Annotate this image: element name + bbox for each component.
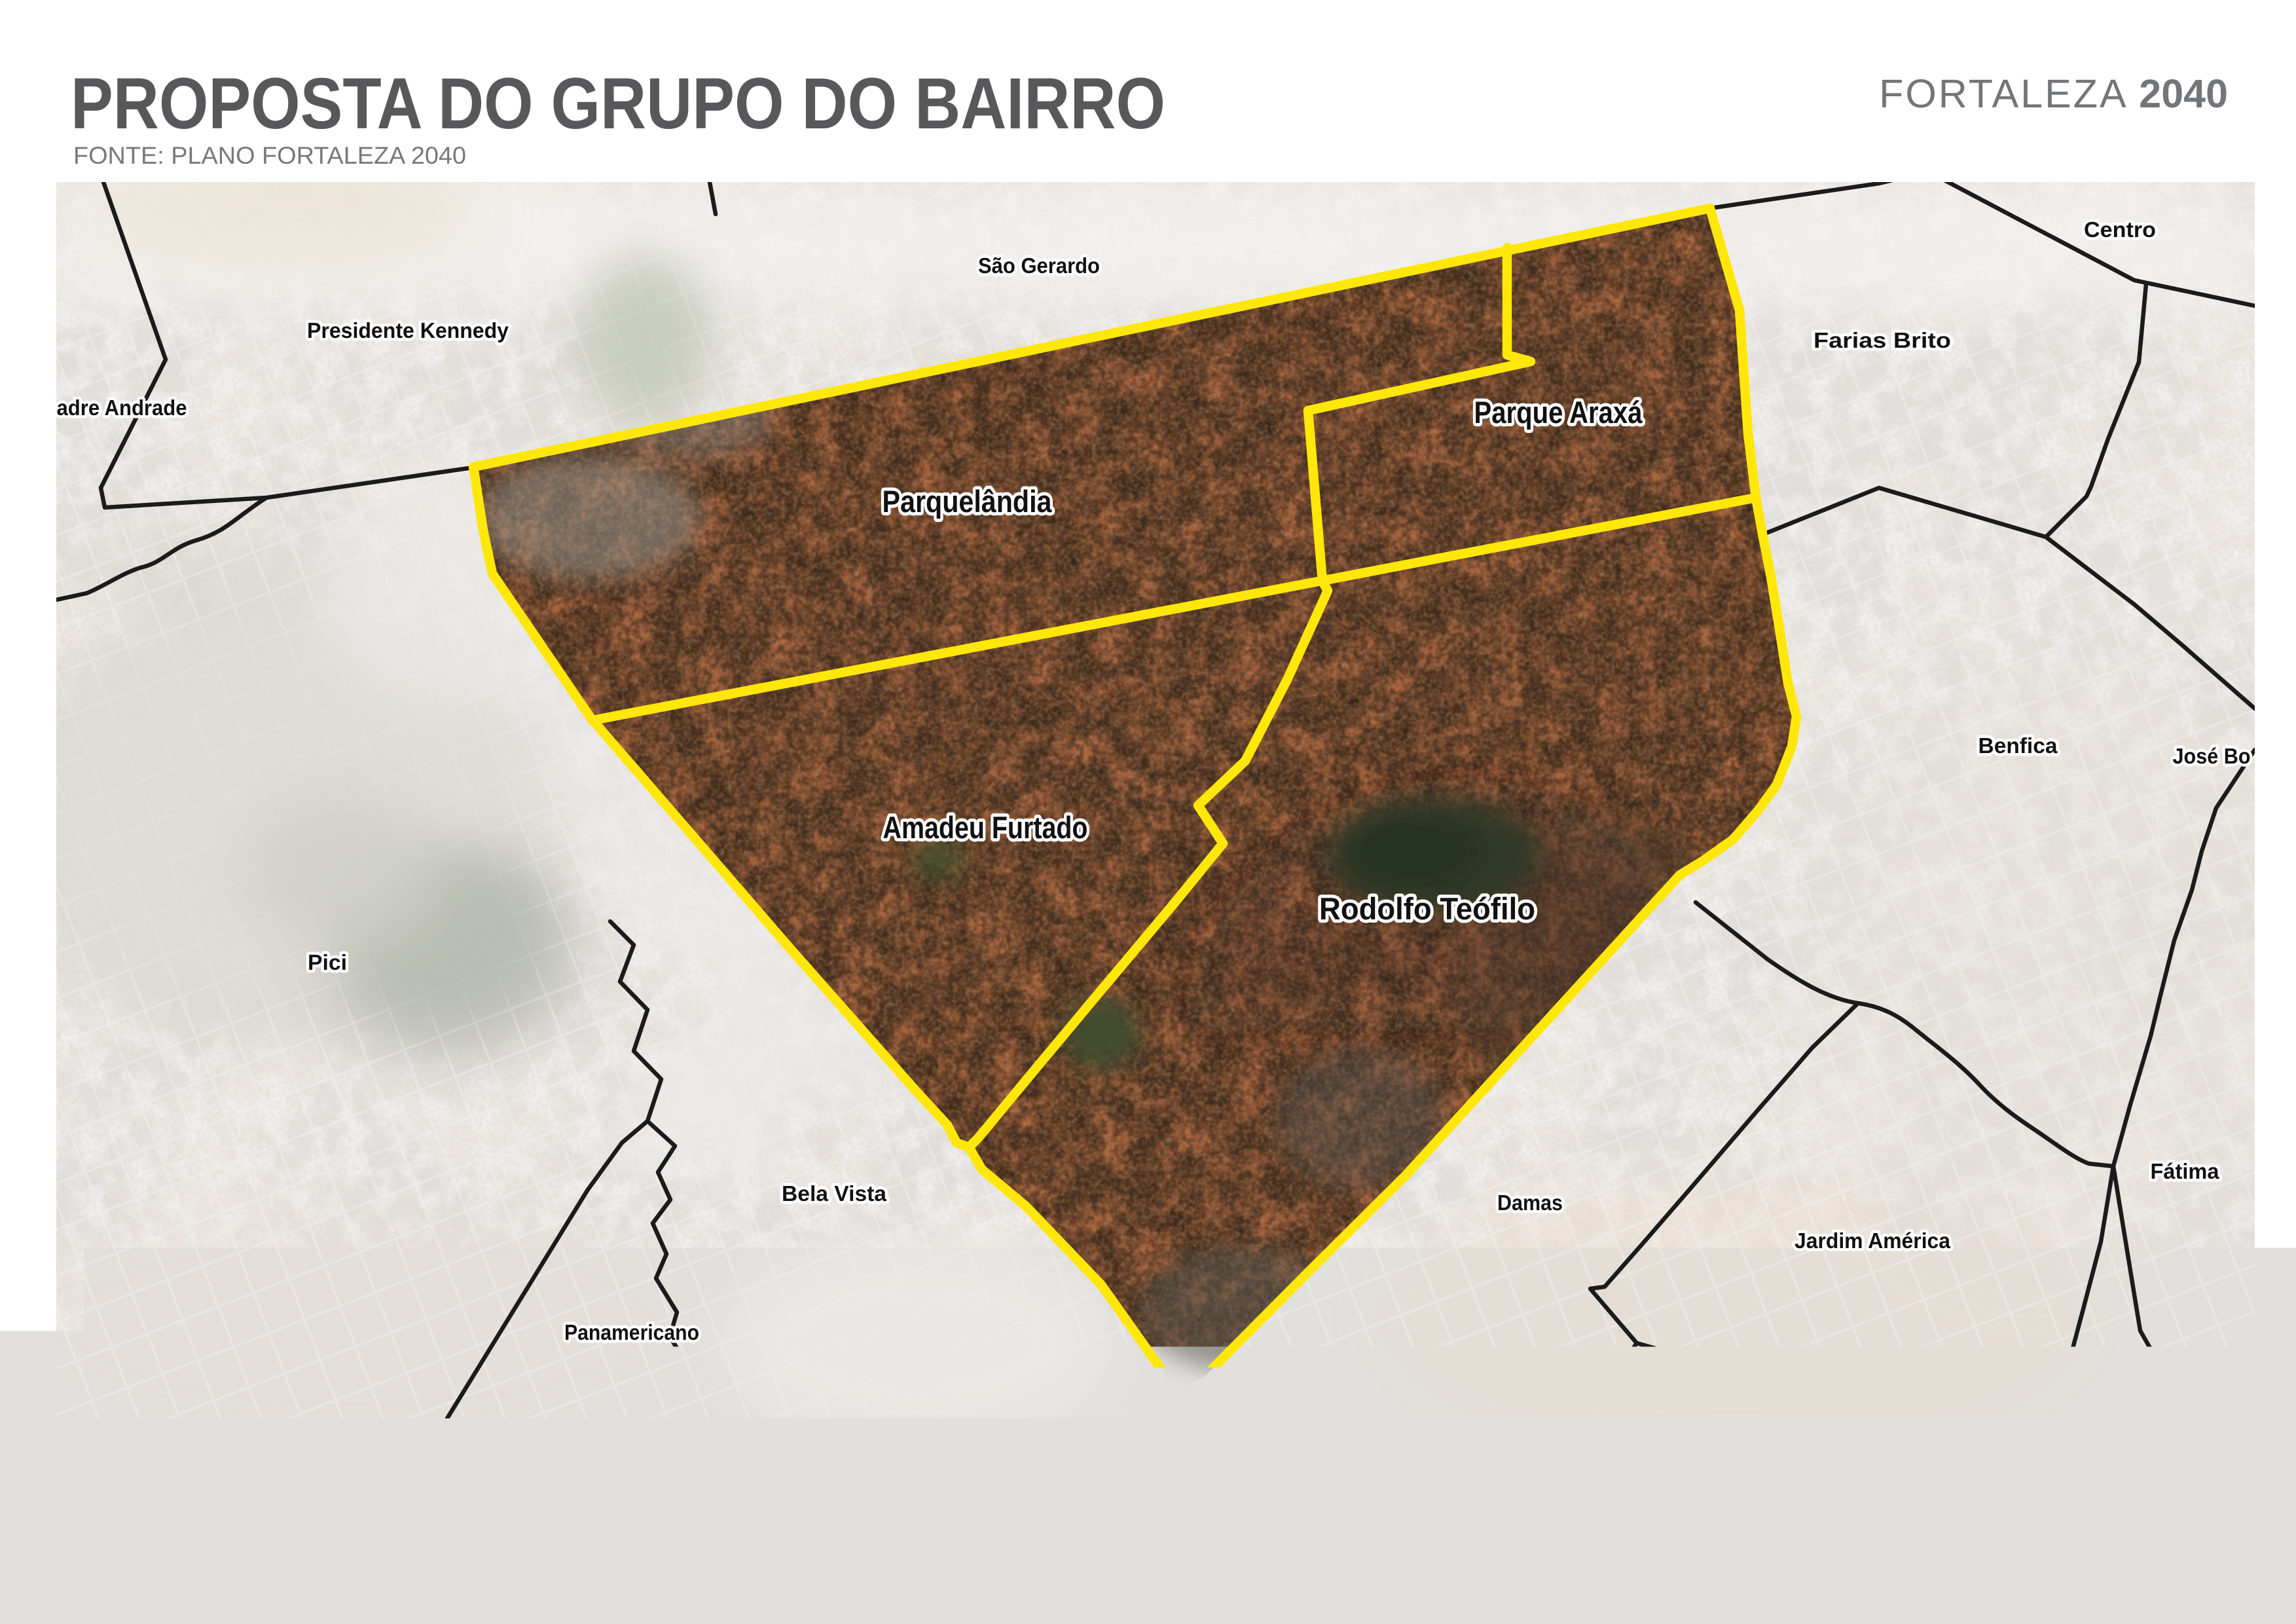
svg-text:Bela Vista: Bela Vista — [782, 1181, 887, 1206]
svg-text:PROPOSTA DO GRUPO DO BAIRRO: PROPOSTA DO GRUPO DO BAIRRO — [71, 64, 1165, 144]
svg-text:adre Andrade: adre Andrade — [57, 396, 187, 420]
svg-text:Jardim América: Jardim América — [1795, 1228, 1951, 1253]
svg-text:Bom Futuro: Bom Futuro — [1591, 1380, 1702, 1405]
svg-text:PROJEÇÃO UTM 24S - DATUM: SIRG: PROJEÇÃO UTM 24S - DATUM: SIRGAS 2000 — [76, 1557, 497, 1582]
svg-text:2 km: 2 km — [969, 1424, 1029, 1455]
svg-text:1:17000: 1:17000 — [178, 1517, 316, 1551]
svg-text:Presidente Kennedy: Presidente Kennedy — [307, 318, 509, 342]
svg-text:Rodolfo Teófilo: Rodolfo Teófilo — [1319, 891, 1535, 926]
svg-text:Pici: Pici — [308, 950, 347, 974]
svg-text:Amadeu Furtado: Amadeu Furtado — [883, 810, 1088, 845]
svg-text:FORTALEZA 2040: FORTALEZA 2040 — [1879, 71, 2228, 116]
svg-text:Parreão: Parreão — [2059, 1367, 2141, 1391]
svg-text:Fátima: Fátima — [2151, 1159, 2220, 1183]
svg-text:Parquelândia: Parquelândia — [883, 484, 1053, 519]
svg-text:0: 0 — [65, 1424, 81, 1455]
svg-text:Farias Brito: Farias Brito — [1813, 328, 1951, 352]
svg-text:FONTE: PLANO FORTALEZA 2040: FONTE: PLANO FORTALEZA 2040 — [73, 142, 466, 169]
svg-text:Parque Araxá: Parque Araxá — [1474, 395, 1643, 430]
svg-text:Centro: Centro — [2084, 217, 2156, 242]
svg-text:1: 1 — [524, 1424, 539, 1455]
svg-text:ESCALA: ESCALA — [76, 1524, 162, 1549]
svg-text:Territórios: Territórios — [1844, 1452, 2010, 1488]
svg-text:Damas: Damas — [1497, 1190, 1563, 1215]
svg-text:São Gerardo: São Gerardo — [978, 253, 1100, 278]
svg-text:Bairros: Bairros — [2096, 1452, 2205, 1488]
svg-text:Panamericano: Panamericano — [564, 1320, 699, 1344]
svg-text:Benfica: Benfica — [1978, 733, 2058, 758]
svg-text:José Bo: José Bo — [2173, 744, 2251, 768]
